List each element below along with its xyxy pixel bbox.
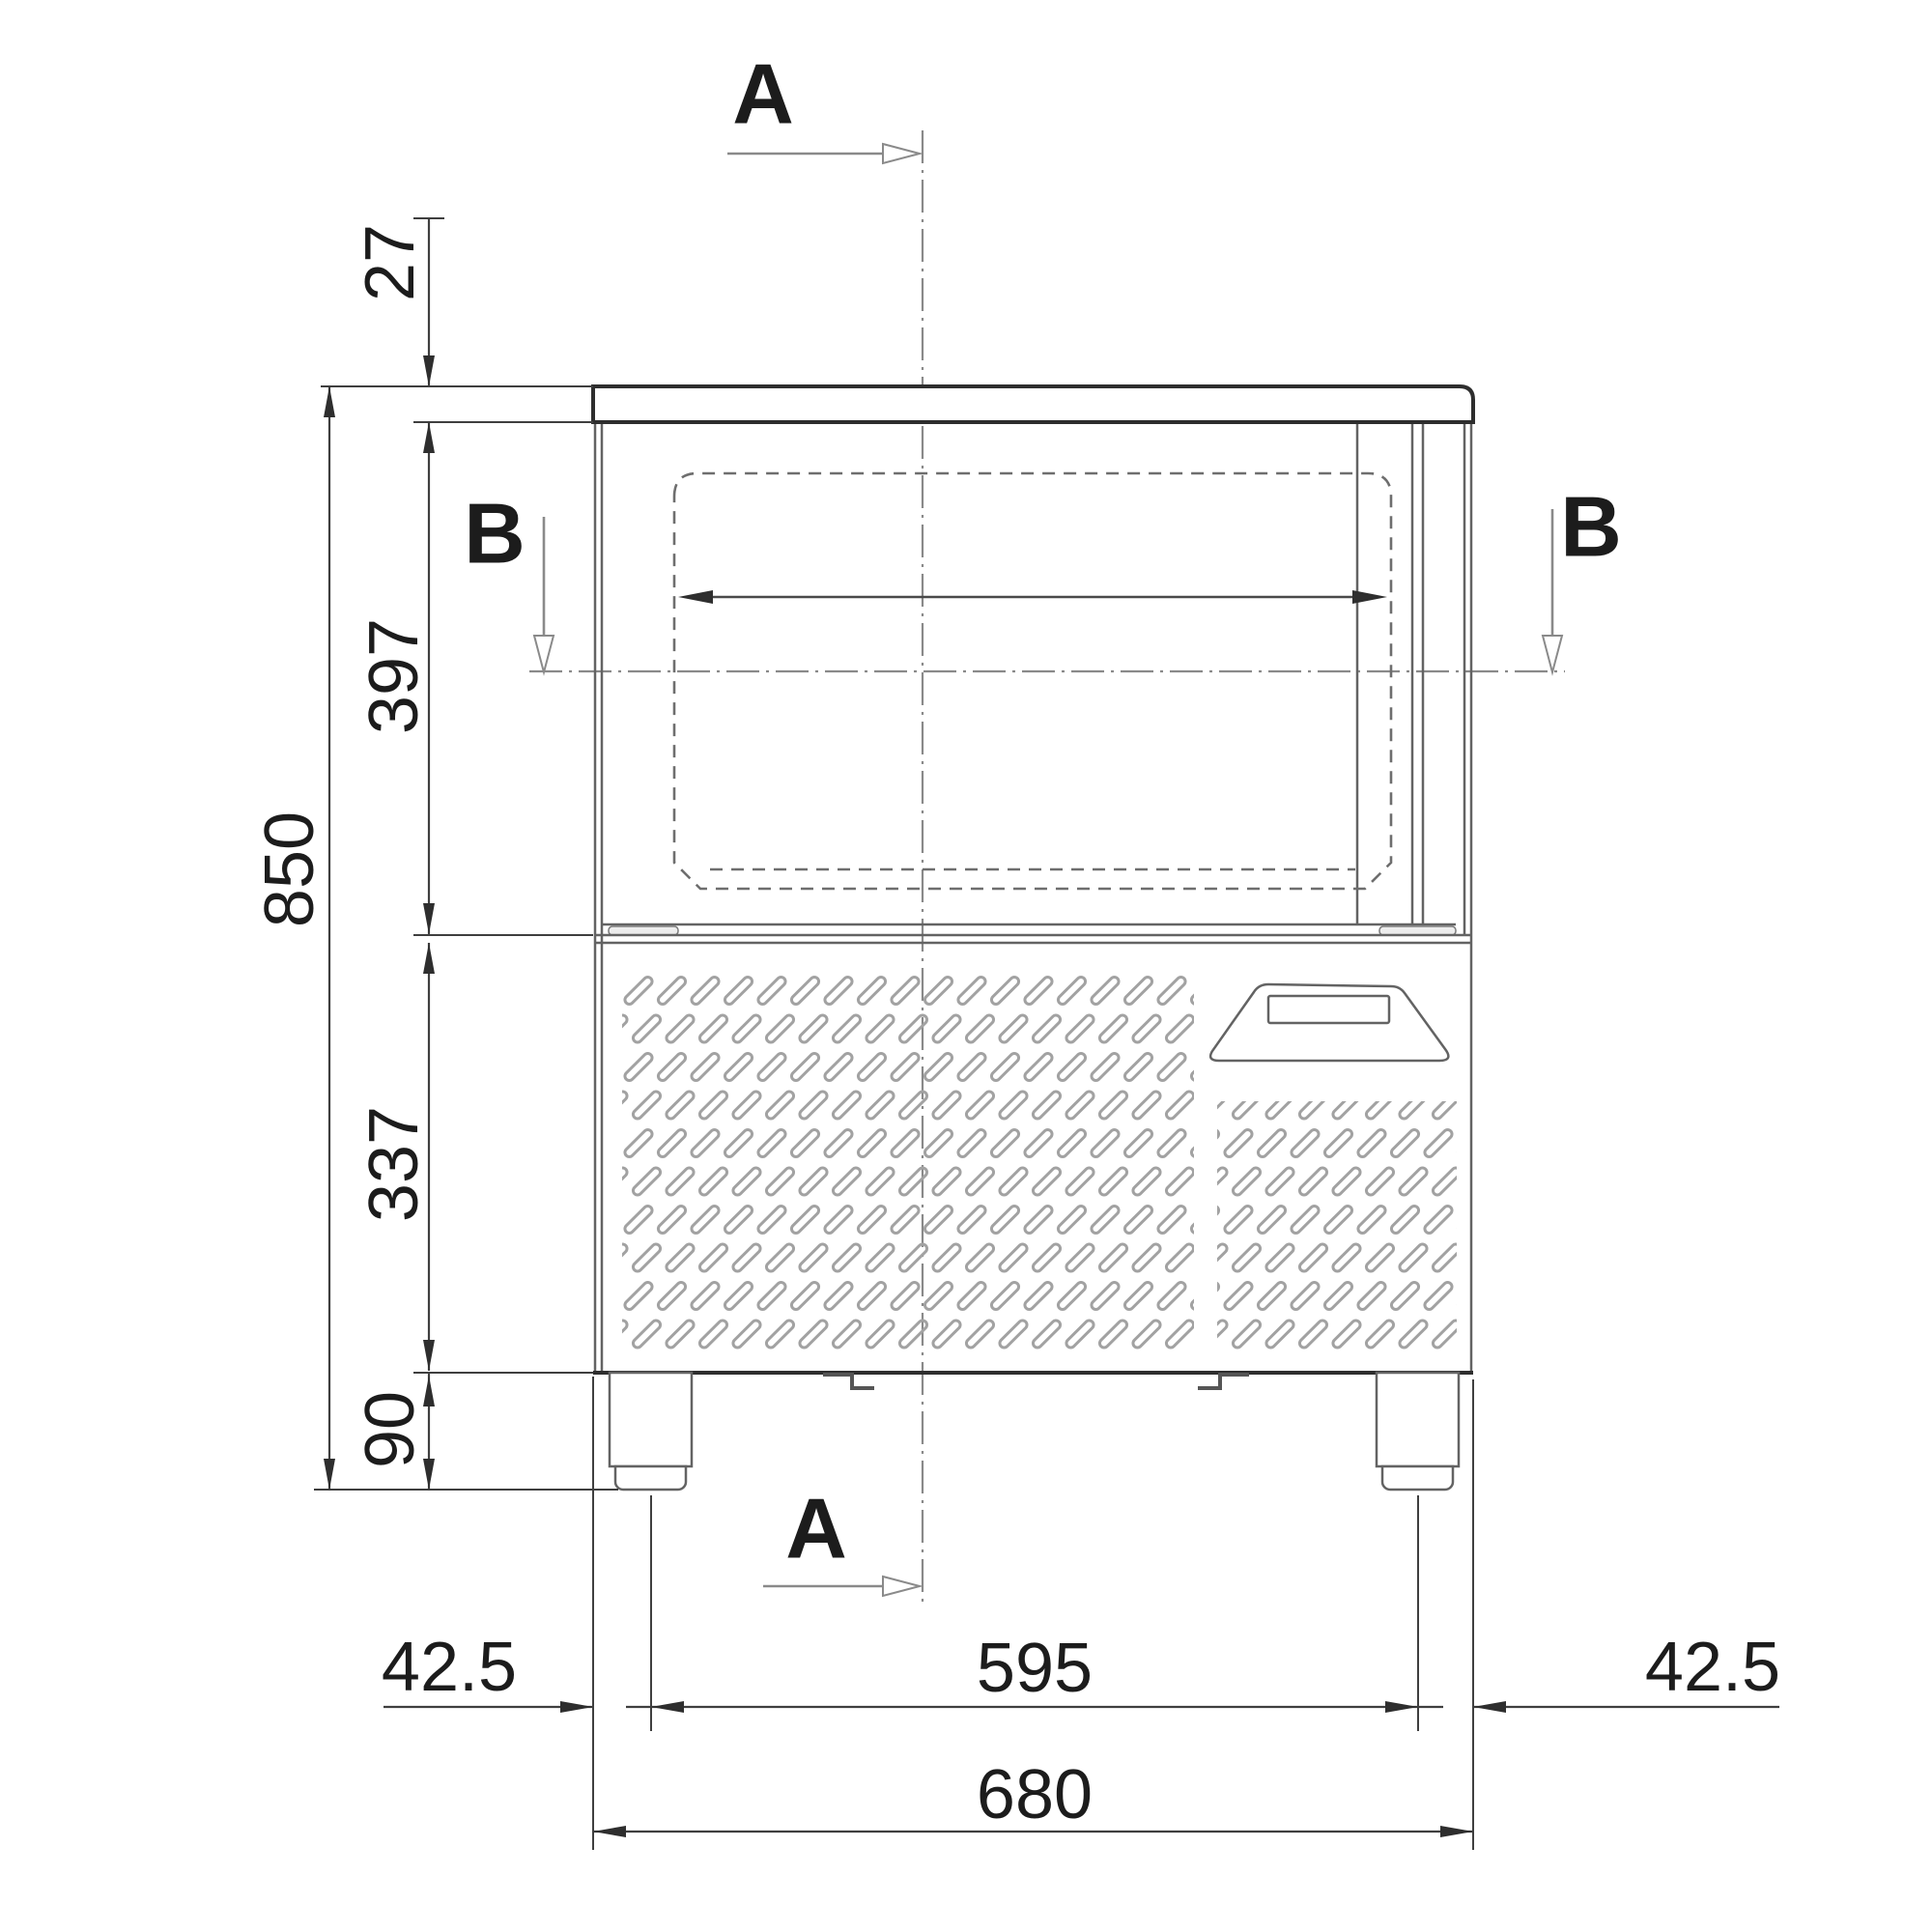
section-a-bottom-arrow <box>763 1577 920 1596</box>
dimension-overall-width: 680 <box>593 1756 1473 1837</box>
dim-arrow-icon <box>651 1701 684 1713</box>
dim-value-595: 595 <box>977 1630 1093 1707</box>
section-b-left-arrow <box>534 517 554 672</box>
leg-right <box>1377 1373 1459 1490</box>
dim-arrow-icon <box>593 1826 626 1837</box>
section-label-b-right: B <box>1560 479 1622 575</box>
dim-value-680: 680 <box>977 1756 1093 1833</box>
chamber-width-arrow <box>678 590 1387 604</box>
dim-arrow-icon <box>1385 1701 1418 1713</box>
dim-value-42-5-left: 42.5 <box>382 1629 517 1706</box>
section-arrow-icon <box>534 636 554 672</box>
dim-value-397: 397 <box>355 618 433 734</box>
dim-arrow-icon <box>423 355 435 386</box>
section-arrow-icon <box>883 144 920 163</box>
leg-right-foot <box>1382 1466 1453 1490</box>
section-label-a-bottom: A <box>785 1481 847 1577</box>
dim-arrow-icon <box>423 1340 435 1371</box>
drain-tab-left <box>823 1375 874 1388</box>
dimension-overall-height: 850 <box>251 386 618 1490</box>
chamber-hidden-outline <box>674 473 1391 889</box>
vent-grille-left <box>622 972 1194 1356</box>
section-arrow-icon <box>883 1577 920 1596</box>
section-a-top-arrow <box>727 144 920 163</box>
dimension-leg-height: 90 <box>352 1373 593 1490</box>
machine-compartment <box>622 972 1457 1388</box>
door-gasket-right <box>1379 926 1456 935</box>
worktop <box>593 386 1473 422</box>
dim-value-850: 850 <box>251 811 328 927</box>
section-line-b: B B <box>464 479 1622 673</box>
dim-arrow-icon <box>423 943 435 974</box>
leg-right-body <box>1377 1373 1459 1466</box>
door-gasket-left <box>609 926 678 935</box>
front-elevation-drawing: A A B B <box>0 0 1932 1932</box>
dimension-worktop-thickness: 27 <box>352 218 444 386</box>
section-arrow-icon <box>1543 636 1562 672</box>
dim-arrow-icon <box>1440 1826 1473 1837</box>
dim-arrow-icon <box>324 1459 335 1490</box>
dimension-left-leg-offset: 42.5 <box>382 1629 593 1713</box>
dim-arrow-icon <box>423 422 435 453</box>
dimension-leg-center-distance: 595 <box>626 1630 1443 1713</box>
control-panel <box>1210 984 1448 1061</box>
section-b-right-arrow <box>1543 509 1562 672</box>
technical-drawing-page: A A B B <box>0 0 1932 1932</box>
dim-arrow-icon <box>1473 1701 1506 1713</box>
drain-tab-right <box>1198 1375 1249 1388</box>
dim-arrow-icon <box>423 903 435 934</box>
vent-grille-right <box>1217 1101 1457 1356</box>
dimension-right-leg-offset: 42.5 <box>1473 1629 1780 1713</box>
dim-arrow-icon <box>560 1701 593 1713</box>
section-label-a-top: A <box>732 46 794 142</box>
inner-chamber-dashed <box>674 473 1391 889</box>
dimension-lower-section-height: 337 <box>355 943 435 1371</box>
dim-value-42-5-right: 42.5 <box>1645 1629 1780 1706</box>
leg-left <box>610 1373 692 1490</box>
dim-value-90: 90 <box>352 1391 429 1468</box>
leg-left-body <box>610 1373 692 1466</box>
dim-value-27: 27 <box>352 224 429 301</box>
arrow-left-icon <box>678 590 713 604</box>
dim-value-337: 337 <box>355 1106 433 1222</box>
arrow-right-icon <box>1352 590 1387 604</box>
section-label-b-left: B <box>464 486 526 582</box>
dim-arrow-icon <box>324 386 335 417</box>
section-line-a: A A <box>727 46 923 1605</box>
leg-left-foot <box>615 1466 686 1490</box>
